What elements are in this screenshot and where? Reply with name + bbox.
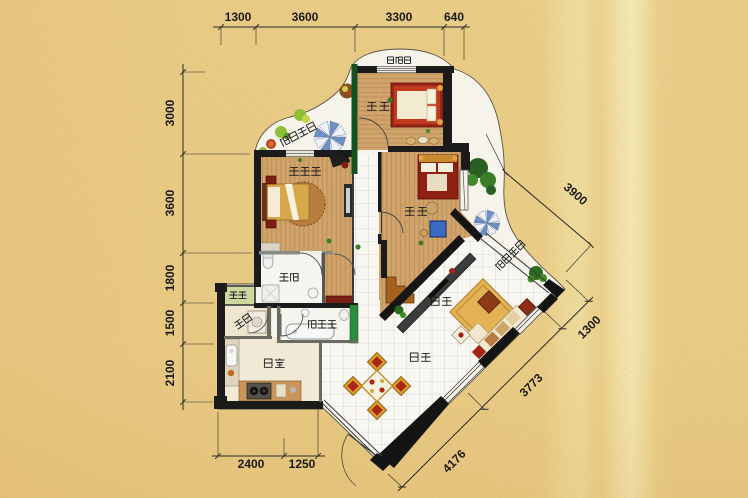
- svg-text:1300: 1300: [225, 10, 252, 24]
- svg-text:3300: 3300: [386, 10, 413, 24]
- svg-text:3000: 3000: [163, 99, 177, 126]
- svg-text:640: 640: [444, 10, 464, 24]
- svg-text:3600: 3600: [163, 189, 177, 216]
- svg-text:1800: 1800: [163, 264, 177, 291]
- svg-text:1250: 1250: [289, 457, 316, 471]
- svg-text:3600: 3600: [292, 10, 319, 24]
- svg-text:1500: 1500: [163, 309, 177, 336]
- svg-text:2100: 2100: [163, 359, 177, 386]
- svg-text:2400: 2400: [238, 457, 265, 471]
